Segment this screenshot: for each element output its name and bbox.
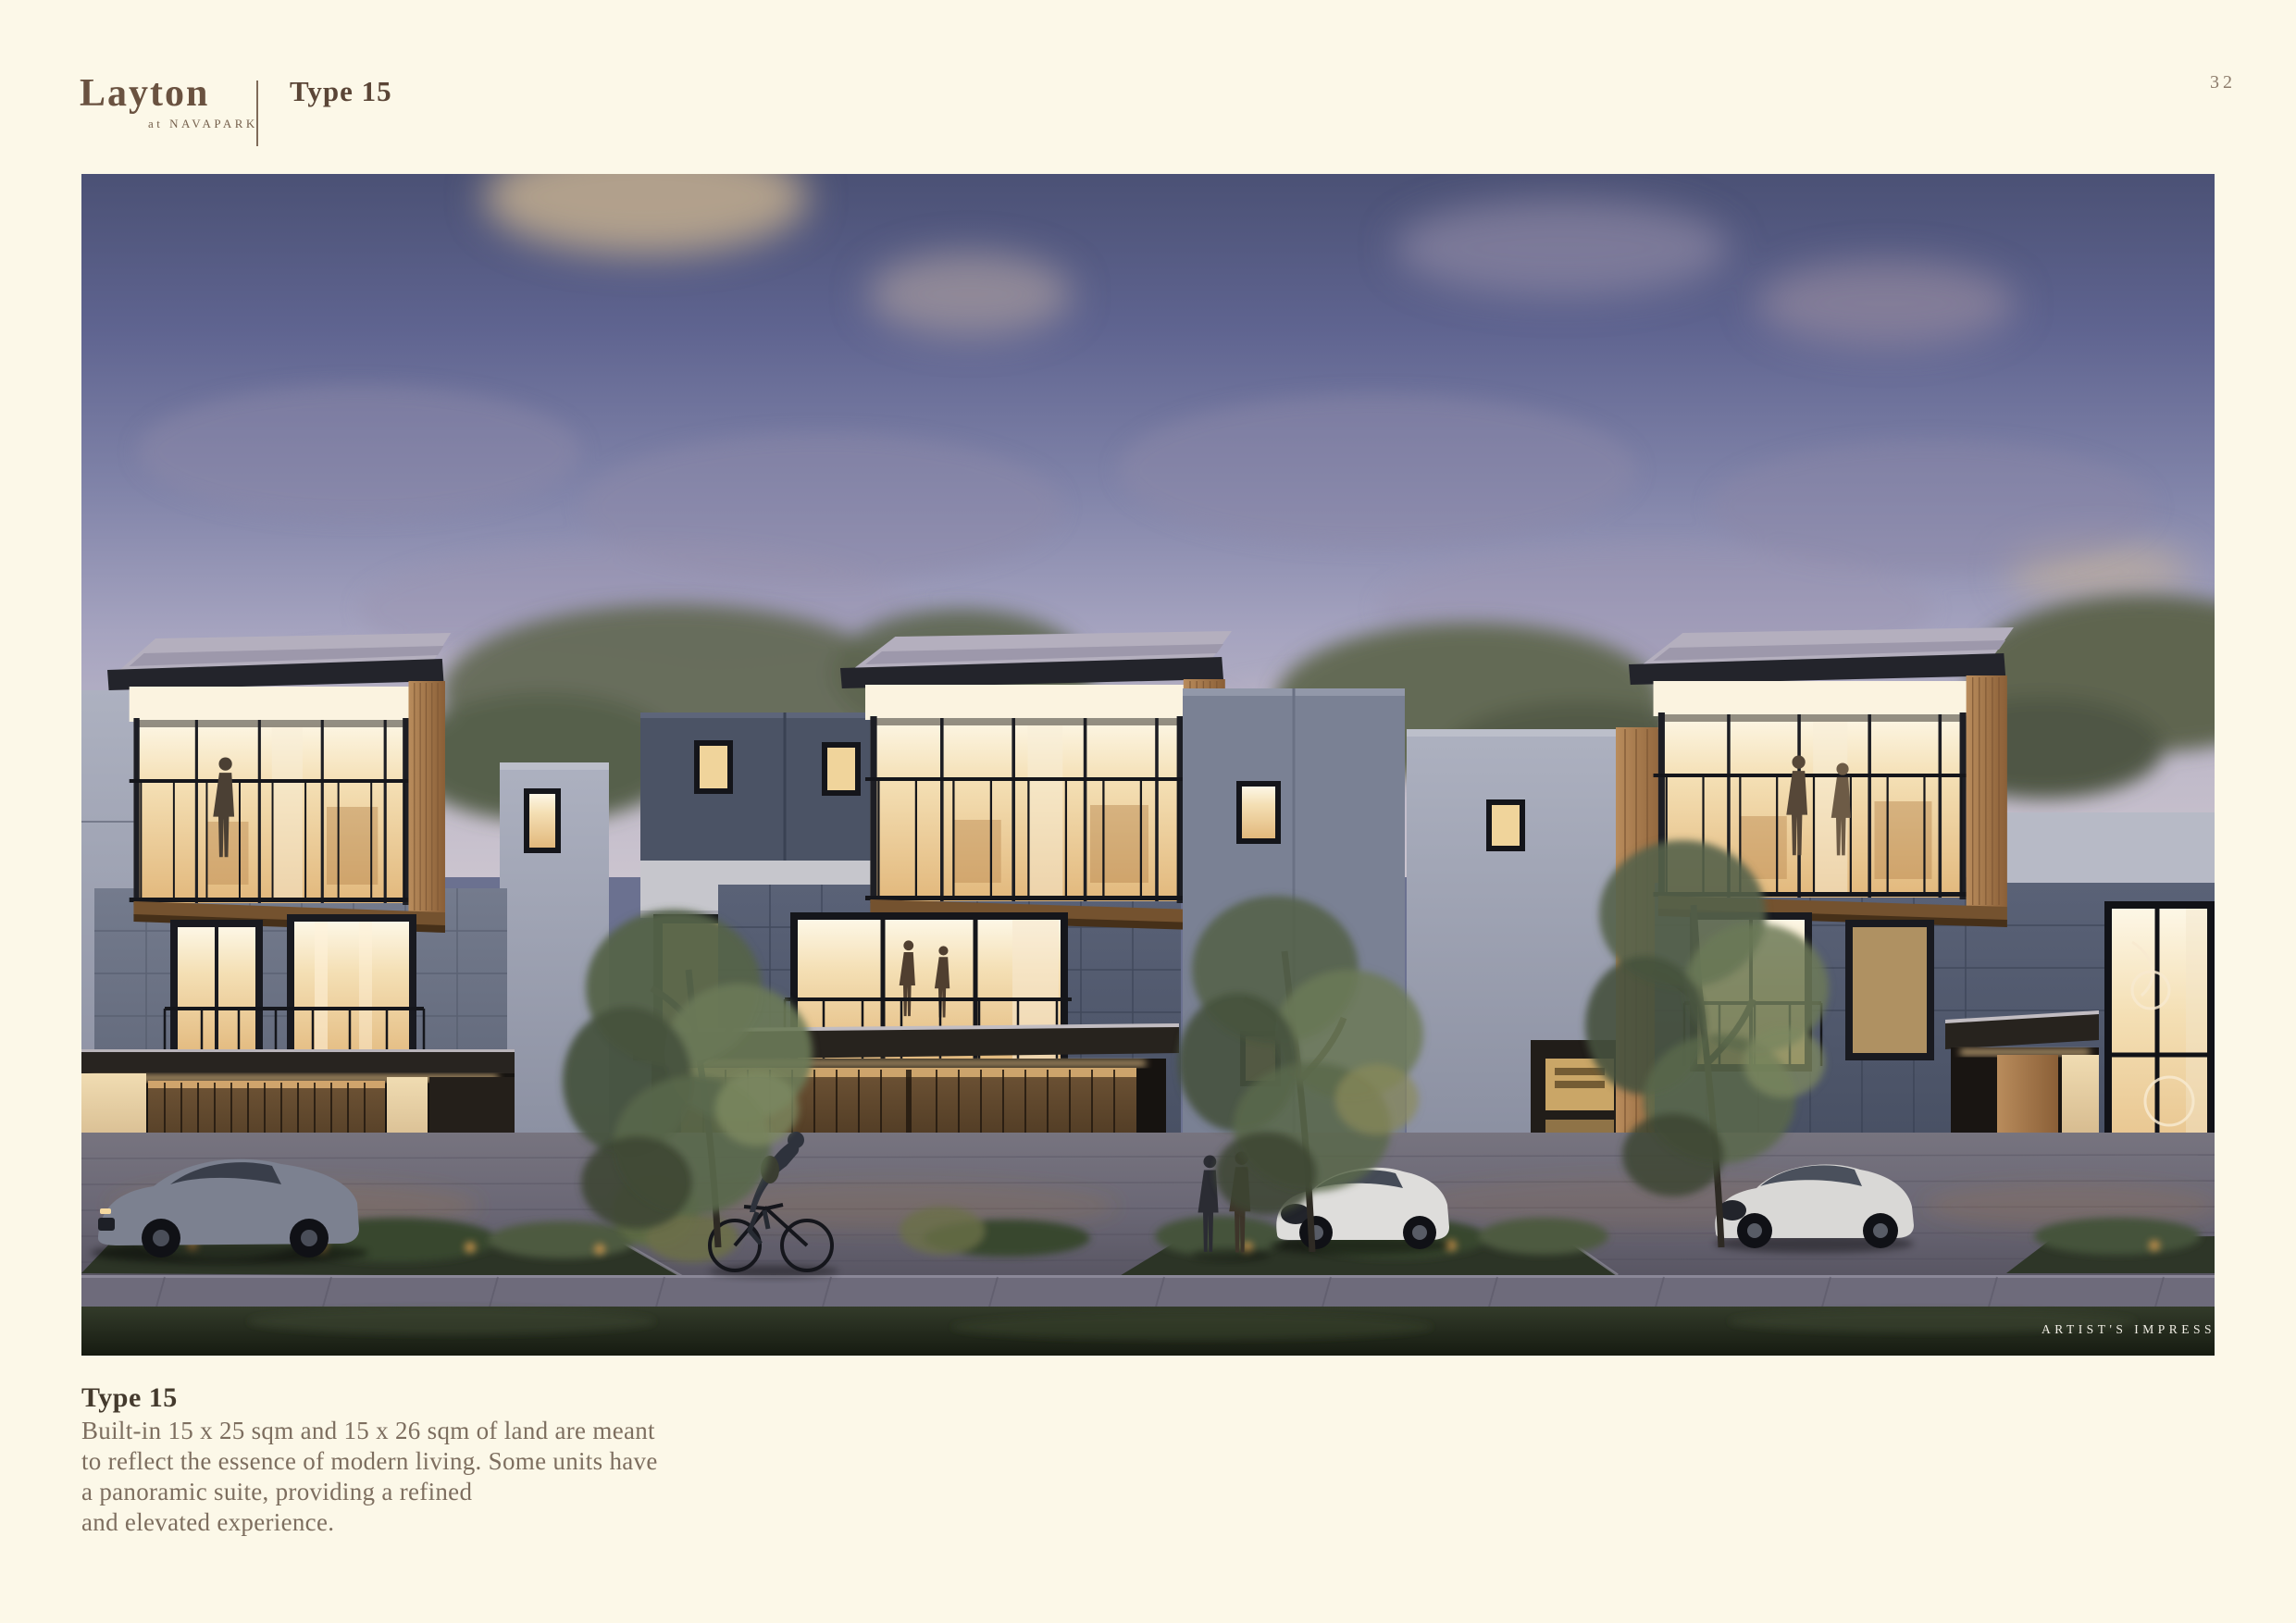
- caption-line-2: to reflect the essence of modern living.…: [81, 1446, 658, 1477]
- artist-impression-label: ARTIST'S IMPRESSION: [2042, 1322, 2215, 1336]
- brand-logo: Layton: [80, 74, 209, 113]
- caption-line-1: Built-in 15 x 25 sqm and 15 x 26 sqm of …: [81, 1416, 658, 1446]
- caption-block: Type 15 Built-in 15 x 25 sqm and 15 x 26…: [81, 1381, 658, 1538]
- caption-line-3: a panoramic suite, providing a refined: [81, 1477, 658, 1507]
- header-divider: [256, 81, 258, 146]
- page-number: 32: [2210, 72, 2236, 93]
- hero-rendering: ARTIST'S IMPRESSION: [81, 174, 2215, 1356]
- section-title: Type 15: [290, 77, 392, 105]
- caption-line-4: and elevated experience.: [81, 1507, 658, 1538]
- brand-tagline: at NAVAPARK: [148, 117, 258, 131]
- caption-title: Type 15: [81, 1381, 658, 1416]
